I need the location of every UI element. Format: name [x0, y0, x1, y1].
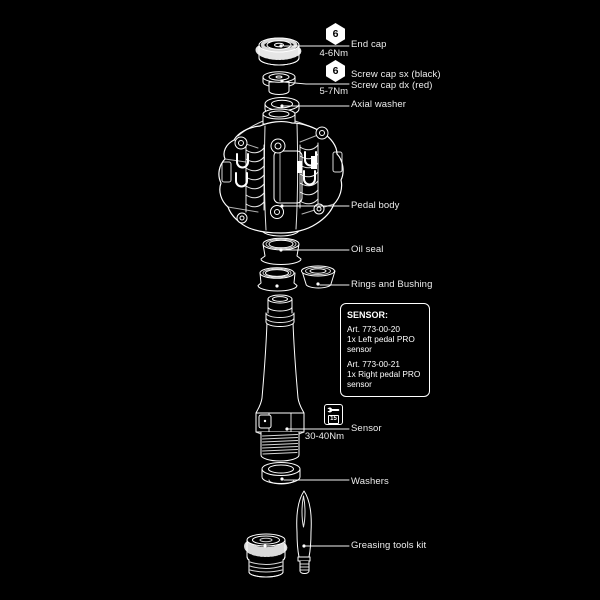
wrench-icon [327, 406, 340, 414]
label-greasing-kit: Greasing tools kit [351, 541, 426, 552]
sensor-box-item: Art. 773-00-21 1x Right pedal PRO sensor [347, 360, 423, 389]
wrench-tool-icon: 15 [324, 404, 343, 425]
sensor-info-box: SENSOR: Art. 773-00-20 1x Left pedal PRO… [340, 303, 430, 397]
label-screw-cap-dx: Screw cap dx (red) [351, 81, 433, 92]
sensor-art-desc: 1x Left pedal PRO sensor [347, 334, 415, 354]
label-oil-seal: Oil seal [351, 245, 383, 256]
screw-cap-part [263, 72, 295, 95]
label-washers: Washers [351, 477, 389, 488]
label-axial-washer: Axial washer [351, 100, 406, 111]
label-pedal-body: Pedal body [351, 201, 400, 212]
exploded-diagram: 6 6 15 4-6Nm 5-7Nm 30-40Nm End cap Screw… [0, 0, 600, 600]
torque-screw-cap: 5-7Nm [300, 86, 348, 97]
label-sensor: Sensor [351, 424, 382, 435]
label-end-cap: End cap [351, 40, 387, 51]
wrench-size: 15 [328, 415, 340, 424]
hex-key-size: 6 [333, 65, 339, 77]
pedal-body-part [219, 109, 343, 236]
washers-part [262, 463, 300, 484]
greasing-kit-part [247, 491, 311, 577]
rings-bushing-part [258, 266, 335, 291]
sensor-box-item: Art. 773-00-20 1x Left pedal PRO sensor [347, 325, 423, 354]
torque-end-cap: 4-6Nm [300, 48, 348, 59]
sensor-art-desc: 1x Right pedal PRO sensor [347, 369, 420, 389]
hex-key-size: 6 [333, 28, 339, 40]
end-cap-part [259, 38, 299, 65]
label-rings-bushing: Rings and Bushing [351, 280, 432, 291]
torque-sensor: 30-40Nm [296, 431, 344, 442]
sensor-box-title: SENSOR: [347, 310, 423, 320]
